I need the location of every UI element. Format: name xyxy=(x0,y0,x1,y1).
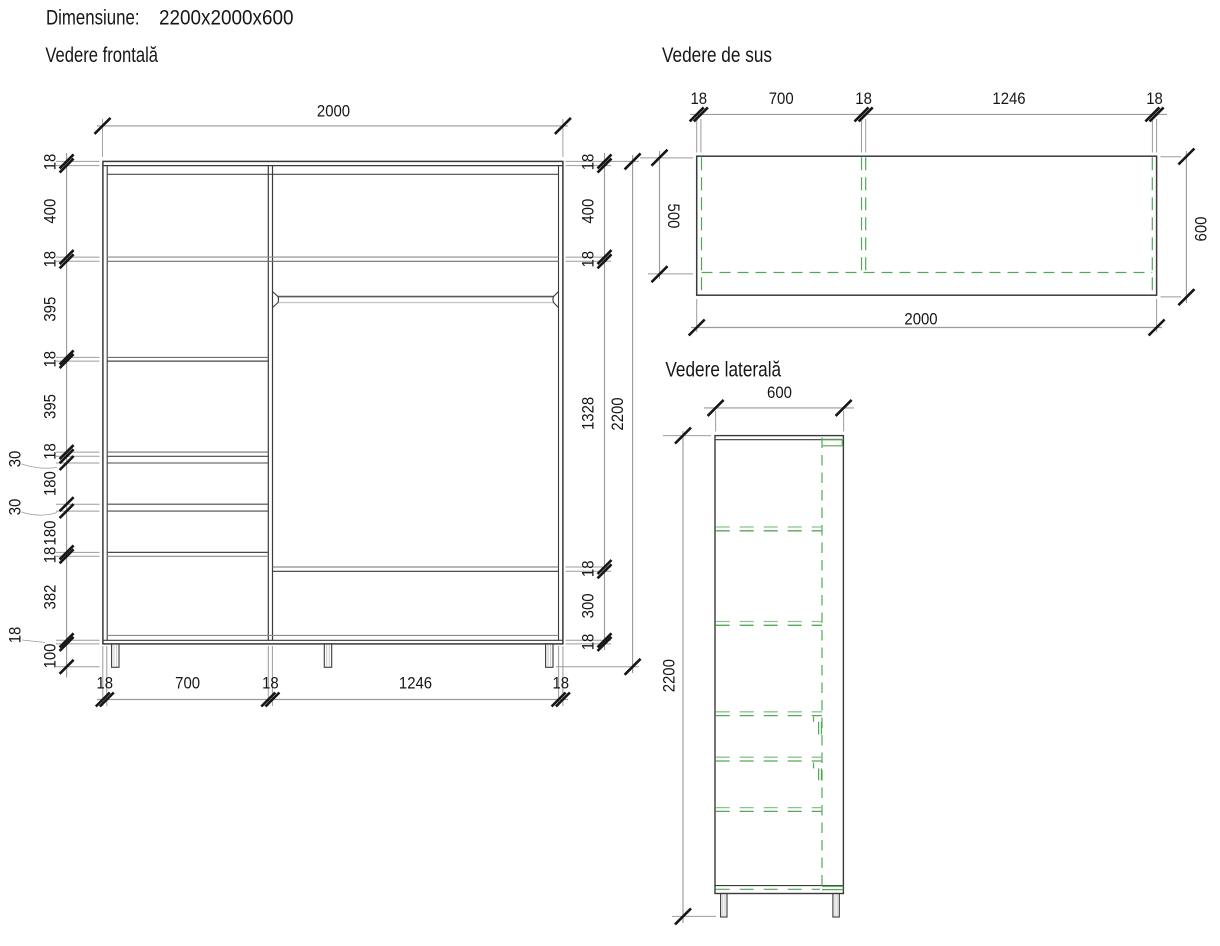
svg-text:400: 400 xyxy=(579,199,597,224)
svg-text:1328: 1328 xyxy=(579,397,597,430)
svg-text:300: 300 xyxy=(579,593,597,618)
svg-text:1246: 1246 xyxy=(992,90,1025,108)
svg-text:18: 18 xyxy=(1146,90,1163,108)
svg-text:Dimensiune:: Dimensiune: xyxy=(46,7,140,30)
svg-text:18: 18 xyxy=(42,547,60,564)
svg-text:18: 18 xyxy=(855,90,872,108)
svg-text:500: 500 xyxy=(664,204,682,229)
svg-text:2200x2000x600: 2200x2000x600 xyxy=(159,7,294,30)
svg-text:700: 700 xyxy=(769,90,794,108)
svg-text:18: 18 xyxy=(42,351,60,368)
svg-text:100: 100 xyxy=(42,644,60,669)
svg-text:18: 18 xyxy=(579,251,597,268)
svg-text:18: 18 xyxy=(579,154,597,171)
svg-text:18: 18 xyxy=(262,674,279,692)
svg-text:180: 180 xyxy=(42,521,60,546)
svg-text:30: 30 xyxy=(7,499,25,516)
svg-text:2200: 2200 xyxy=(609,397,627,430)
svg-text:18: 18 xyxy=(579,634,597,651)
svg-text:700: 700 xyxy=(175,674,200,692)
svg-text:18: 18 xyxy=(579,561,597,578)
svg-text:1246: 1246 xyxy=(399,674,432,692)
svg-text:18: 18 xyxy=(7,627,25,644)
svg-text:Vedere frontală: Vedere frontală xyxy=(45,44,158,67)
svg-text:2000: 2000 xyxy=(904,311,937,329)
svg-text:18: 18 xyxy=(691,90,708,108)
svg-text:400: 400 xyxy=(42,199,60,224)
svg-text:Vedere laterală: Vedere laterală xyxy=(665,359,781,382)
svg-text:600: 600 xyxy=(1193,217,1211,242)
svg-text:2000: 2000 xyxy=(317,102,350,120)
svg-text:2200: 2200 xyxy=(661,659,679,692)
svg-text:30: 30 xyxy=(7,451,25,468)
svg-text:395: 395 xyxy=(42,394,60,419)
svg-text:382: 382 xyxy=(42,585,60,610)
svg-text:18: 18 xyxy=(553,674,570,692)
svg-text:18: 18 xyxy=(42,251,60,268)
svg-text:Vedere de sus: Vedere de sus xyxy=(662,44,772,67)
svg-text:18: 18 xyxy=(42,443,60,460)
svg-text:18: 18 xyxy=(42,154,60,171)
svg-text:180: 180 xyxy=(42,471,60,496)
svg-text:600: 600 xyxy=(767,384,792,402)
svg-text:18: 18 xyxy=(97,674,114,692)
svg-text:395: 395 xyxy=(42,297,60,322)
